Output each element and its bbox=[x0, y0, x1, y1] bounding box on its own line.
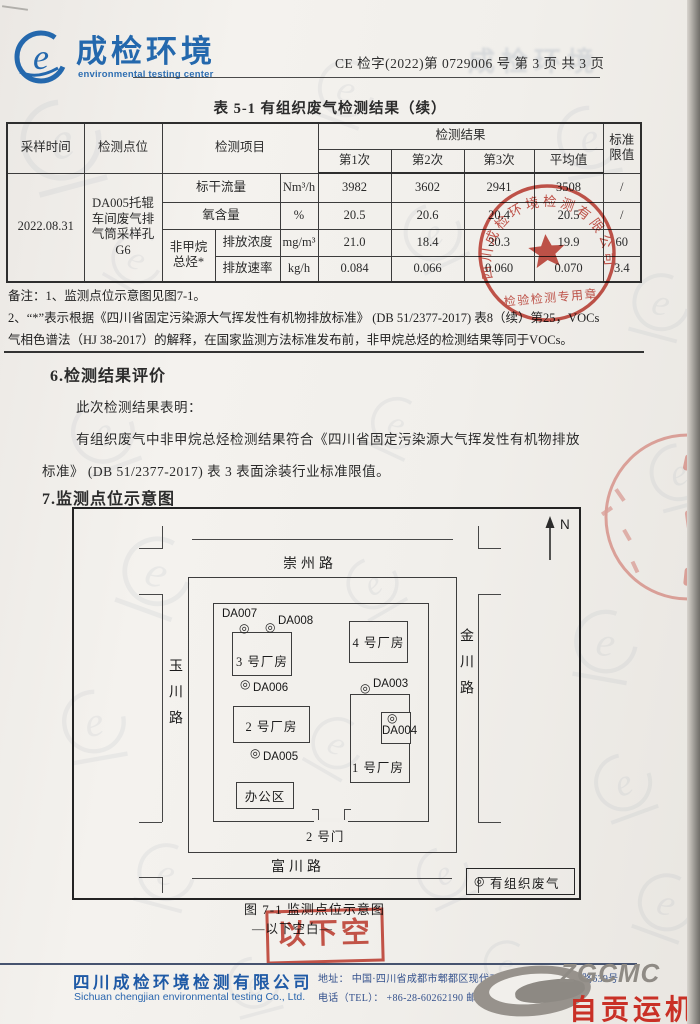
building-4: 4 号厂房 bbox=[349, 621, 408, 663]
gate-label: 2 号门 bbox=[306, 826, 344, 845]
scanned-report-page: e e e e e e e e e e e bbox=[0, 0, 700, 1024]
point-label: DA005 bbox=[263, 751, 298, 763]
point-label: DA007 bbox=[222, 608, 257, 620]
point-label: DA006 bbox=[253, 682, 288, 694]
office-area-label: 办公区 bbox=[237, 786, 293, 805]
stamp-subtitle-text: 检验检测专用章 bbox=[503, 286, 598, 309]
road-line bbox=[192, 878, 452, 879]
road-line bbox=[478, 548, 501, 549]
road-line bbox=[478, 526, 479, 549]
monitor-point-icon: ◎ bbox=[239, 622, 249, 634]
road-label-right: 金川路 bbox=[455, 628, 475, 706]
office-area: 办公区 bbox=[236, 782, 294, 809]
zgcmc-logo: ZGCMC 自贡运机 bbox=[455, 950, 700, 1024]
road-line bbox=[162, 526, 163, 549]
road-line bbox=[139, 548, 162, 549]
building-3: 3 号厂房 bbox=[232, 632, 292, 676]
footer-company-cn: 四川成检环境检测有限公司 bbox=[73, 969, 313, 993]
zgcmc-text-en: ZGCMC bbox=[560, 958, 660, 989]
road-line bbox=[192, 539, 453, 540]
road-line bbox=[139, 877, 162, 878]
gate-tick bbox=[318, 809, 319, 820]
company-round-stamp: 四川成检环境检测有限公司 检验检测专用章 bbox=[455, 161, 639, 345]
point-label: DA003 bbox=[373, 678, 408, 690]
footer-company-en: Sichuan chengjian environmental testing … bbox=[74, 991, 305, 1003]
road-line bbox=[139, 822, 162, 823]
legend-box: ◎ 有组织废气 bbox=[466, 868, 575, 895]
monitor-point-icon: ◎ bbox=[250, 747, 260, 759]
legend-symbol-icon: ◎ bbox=[474, 875, 484, 887]
monitor-point-icon: ◎ bbox=[360, 682, 370, 694]
north-label: N bbox=[560, 517, 570, 532]
zgcmc-text-cn: 自贡运机 bbox=[569, 988, 697, 1024]
road-line bbox=[478, 822, 501, 823]
gate-tick bbox=[312, 809, 319, 810]
monitor-point-icon: ◎ bbox=[265, 621, 275, 633]
monitor-point-icon: ◎ bbox=[387, 712, 397, 724]
road-line bbox=[478, 594, 501, 595]
legend-label: 有组织废气 bbox=[490, 873, 560, 892]
point-label: DA008 bbox=[278, 615, 313, 627]
gate-tick bbox=[344, 809, 345, 820]
partial-stamp-arc bbox=[575, 425, 700, 615]
building-1-label: 1 号厂房 bbox=[352, 757, 404, 776]
road-line bbox=[478, 594, 479, 822]
road-line bbox=[139, 594, 162, 595]
building-3-label: 3 号厂房 bbox=[233, 651, 291, 670]
gate-tick bbox=[344, 809, 351, 810]
blank-red-stamp: 以下空白 bbox=[265, 907, 384, 964]
road-label-bottom: 富川路 bbox=[271, 856, 325, 876]
stamp-star-icon bbox=[527, 232, 566, 268]
building-4-label: 4 号厂房 bbox=[350, 632, 407, 651]
road-label-left: 玉川路 bbox=[164, 658, 184, 736]
road-label-top: 崇州路 bbox=[283, 553, 337, 573]
monitor-point-icon: ◎ bbox=[240, 678, 250, 690]
building-2-label: 2 号厂房 bbox=[234, 716, 309, 735]
road-line bbox=[162, 877, 163, 893]
building-2: 2 号厂房 bbox=[233, 706, 310, 743]
page-edge-shadow bbox=[687, 0, 700, 1024]
point-label: DA004 bbox=[382, 725, 417, 737]
